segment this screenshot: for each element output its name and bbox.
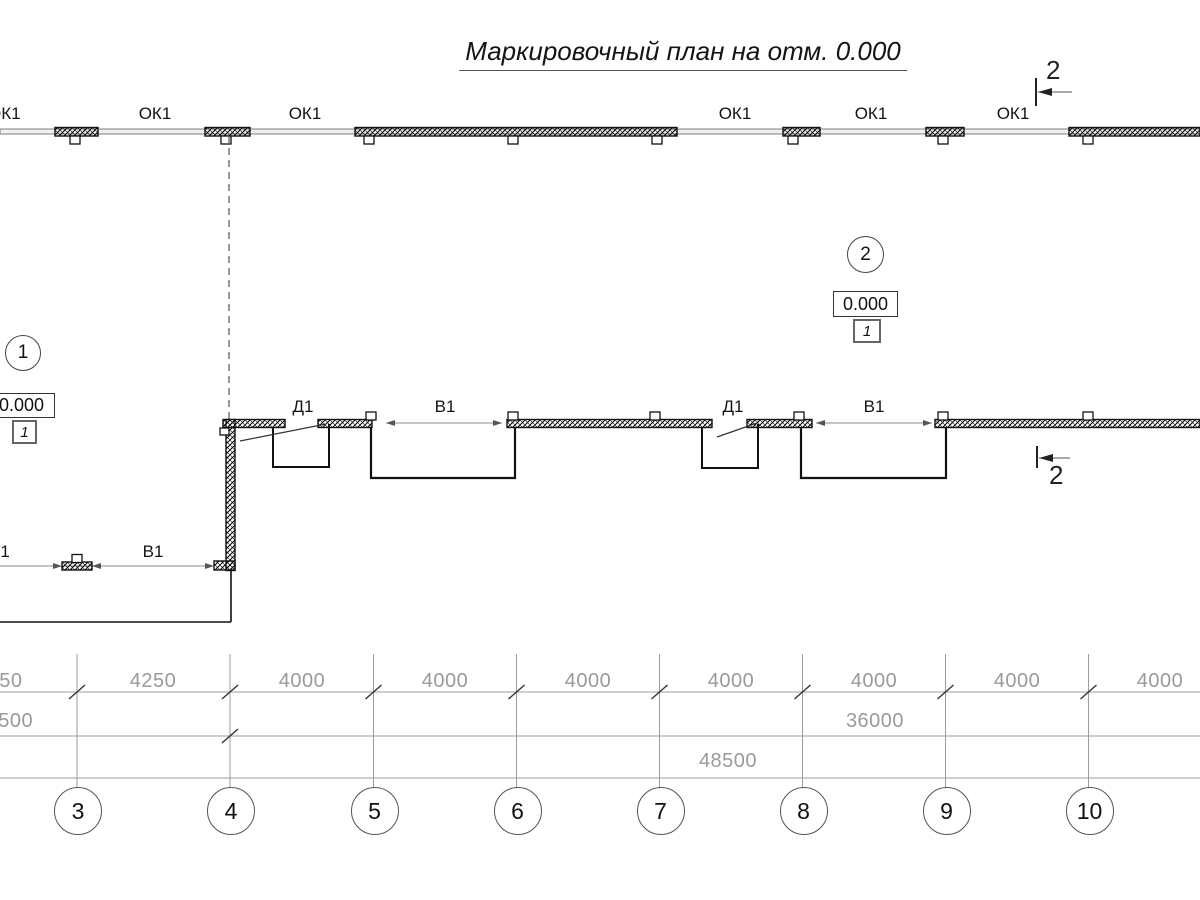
elevation-box: 0.000 xyxy=(833,291,898,317)
door-swing-line-2 xyxy=(717,423,757,437)
axis-bubble: 7 xyxy=(637,787,685,835)
zone-box: 1 xyxy=(12,420,37,444)
dimension-ticks xyxy=(69,685,1097,743)
gate-label: В1 xyxy=(864,397,885,417)
dim-label: 4250 xyxy=(0,670,23,693)
door-label: Д1 xyxy=(293,397,314,417)
axis-number: 7 xyxy=(654,798,667,825)
axis-bubble: 5 xyxy=(351,787,399,835)
window-label: ОК1 xyxy=(0,104,21,124)
axis-bubble: 3 xyxy=(54,787,102,835)
drawing-canvas: Маркировочный план на отм. 0.000 2 2 ОК1… xyxy=(0,0,1200,900)
middle-wall xyxy=(214,412,1200,571)
elevation-box: 0.000 xyxy=(0,393,55,418)
room-number-circle: 1 xyxy=(5,335,41,371)
axis-number: 3 xyxy=(72,798,85,825)
room-number: 1 xyxy=(18,342,29,364)
zone-value: 1 xyxy=(20,424,28,441)
door-recess-2 xyxy=(702,424,758,468)
dim-label: 4000 xyxy=(994,670,1041,693)
top-wall-column-tabs xyxy=(70,136,1093,144)
window-label: ОК1 xyxy=(289,104,322,124)
top-wall xyxy=(0,128,1200,145)
window-label: ОК1 xyxy=(719,104,752,124)
dim-label: 4000 xyxy=(1137,670,1184,693)
axis-number: 9 xyxy=(940,798,953,825)
axis-bubble: 8 xyxy=(780,787,828,835)
axis-bubble: 4 xyxy=(207,787,255,835)
dim-label: 48500 xyxy=(699,750,757,773)
zone-box: 1 xyxy=(853,319,881,343)
door-label: Д1 xyxy=(723,397,744,417)
gate-recess-1 xyxy=(371,427,515,478)
zone-value: 1 xyxy=(863,323,871,340)
axis-number: 6 xyxy=(511,798,524,825)
plan-drawing xyxy=(0,0,1200,900)
window-label: ОК1 xyxy=(997,104,1030,124)
window-label: ОК1 xyxy=(139,104,172,124)
axis-bubble: 10 xyxy=(1066,787,1114,835)
axis-number: 5 xyxy=(368,798,381,825)
axis-bubble: 6 xyxy=(494,787,542,835)
axis-number: 10 xyxy=(1077,798,1103,825)
lower-left-wall xyxy=(0,555,231,623)
room-number: 2 xyxy=(860,244,871,266)
gate-label: В1 xyxy=(435,397,456,417)
gate-label: В1 xyxy=(0,542,10,562)
section-label-bottom: 2 xyxy=(1049,460,1063,491)
dim-label: 4000 xyxy=(708,670,755,693)
door-recess-1 xyxy=(273,424,329,467)
section-label-top: 2 xyxy=(1046,55,1060,86)
axis-number: 4 xyxy=(225,798,238,825)
dim-label: 4000 xyxy=(565,670,612,693)
axis-bubble: 9 xyxy=(923,787,971,835)
axis-number: 8 xyxy=(797,798,810,825)
dim-label: 4000 xyxy=(851,670,898,693)
elevation-value: 0.000 xyxy=(843,294,888,315)
gate-recess-2 xyxy=(801,427,946,478)
elevation-value: 0.000 xyxy=(0,395,44,416)
dim-label: 4000 xyxy=(279,670,326,693)
window-label: ОК1 xyxy=(855,104,888,124)
dim-label: 4250 xyxy=(130,670,177,693)
dim-label: 36000 xyxy=(846,710,904,733)
gate-label: В1 xyxy=(143,542,164,562)
dim-label: 4000 xyxy=(422,670,469,693)
dim-label: 12500 xyxy=(0,710,33,733)
drawing-title: Маркировочный план на отм. 0.000 xyxy=(459,36,907,71)
room-number-circle: 2 xyxy=(847,236,884,273)
